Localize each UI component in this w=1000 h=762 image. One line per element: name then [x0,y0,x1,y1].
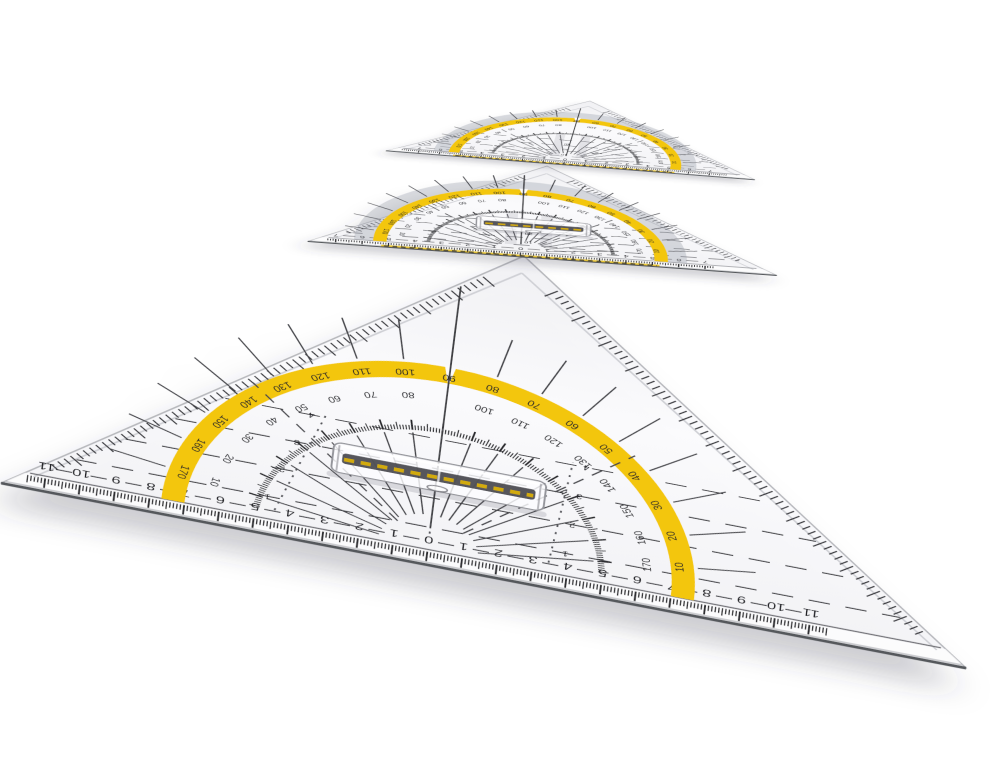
inner-degree-number: 170 [640,557,654,572]
cm-number: 4 [284,507,295,521]
band-degree-number: 10 [671,161,678,164]
height-label: 10 [524,240,532,244]
set-squares-scene: 1110987654321012345678910111701016020150… [0,0,1000,762]
band-degree-number: 20 [667,154,675,157]
cm-number: 1 [544,248,549,252]
cm-number: 2 [571,250,576,254]
cm-number: 4 [480,151,485,154]
parallel-label: 1 [264,492,271,501]
band-degree-number: 110 [350,366,372,376]
band-degree-number: 110 [533,119,544,122]
cm-number: 3 [625,162,630,165]
parallel-label: 2 [569,520,576,529]
inner-degree-number: 170 [657,160,664,164]
cm-number: 9 [736,593,747,607]
cm-number: 8 [145,480,156,494]
cm-number: 1 [388,527,399,541]
band-degree-number: 90 [518,191,528,195]
cm-number: 7 [417,146,422,149]
cm-number: 8 [701,587,712,601]
cm-number: 7 [703,259,708,263]
cm-number: 6 [215,494,226,508]
cm-number: 4 [646,164,651,167]
parallel-label: 4 [583,463,590,472]
cm-number: 9 [111,474,122,488]
cm-number: 2 [604,161,609,164]
cm-number: 4 [623,254,628,258]
cm-number: 3 [527,553,538,567]
cm-number: 3 [501,152,506,155]
small-set-square: 7654321012345671701016020150301404013050… [386,87,775,180]
handle-endcap [480,217,481,228]
cm-number: 7 [708,169,713,172]
cm-number: 2 [465,242,470,246]
cm-number: 2 [354,520,365,534]
height-label: 20 [561,148,569,151]
height-label: 30 [563,143,571,146]
height-label: 10 [560,153,568,156]
band-degree-number: 10 [653,249,662,253]
handle-seam [533,221,534,232]
inner-degree-number: 80 [401,389,415,399]
band-degree-number: 90 [573,119,581,122]
inner-degree-number: 70 [476,199,486,203]
cm-number: 6 [632,573,643,587]
cm-number: 3 [439,240,444,244]
cm-number: 4 [412,238,417,242]
parallel-label: 3 [293,437,300,446]
product-photo: 1110987654321012345678910111701016020150… [0,0,1000,762]
cm-number: 4 [562,560,573,574]
parallel-label: 3 [576,491,583,500]
inner-degree-number: 160 [654,154,663,158]
parallel-label: 1 [562,549,569,558]
band-degree-number: 100 [492,191,507,194]
cm-number: 0 [518,246,523,250]
band-degree-number: 100 [394,366,415,376]
cm-number: 5 [597,567,608,581]
band-degree-number: 10 [673,562,687,572]
parallel-label: 4 [308,410,315,419]
inner-degree-number: 170 [636,249,646,254]
cm-number: 3 [597,252,602,256]
handle-endcap [586,225,587,236]
cm-number: 1 [458,540,469,554]
inner-degree-number: 80 [497,198,506,201]
cm-number: 7 [333,233,338,237]
cm-number: 2 [521,154,526,157]
parallel-label: 2 [279,464,286,473]
band-degree-number: 100 [552,119,563,122]
cm-number: 0 [563,157,568,160]
inner-degree-number: 80 [554,124,562,127]
cm-number: 0 [423,534,434,548]
inner-degree-number: 70 [537,124,546,127]
inner-degree-number: 70 [362,389,378,399]
